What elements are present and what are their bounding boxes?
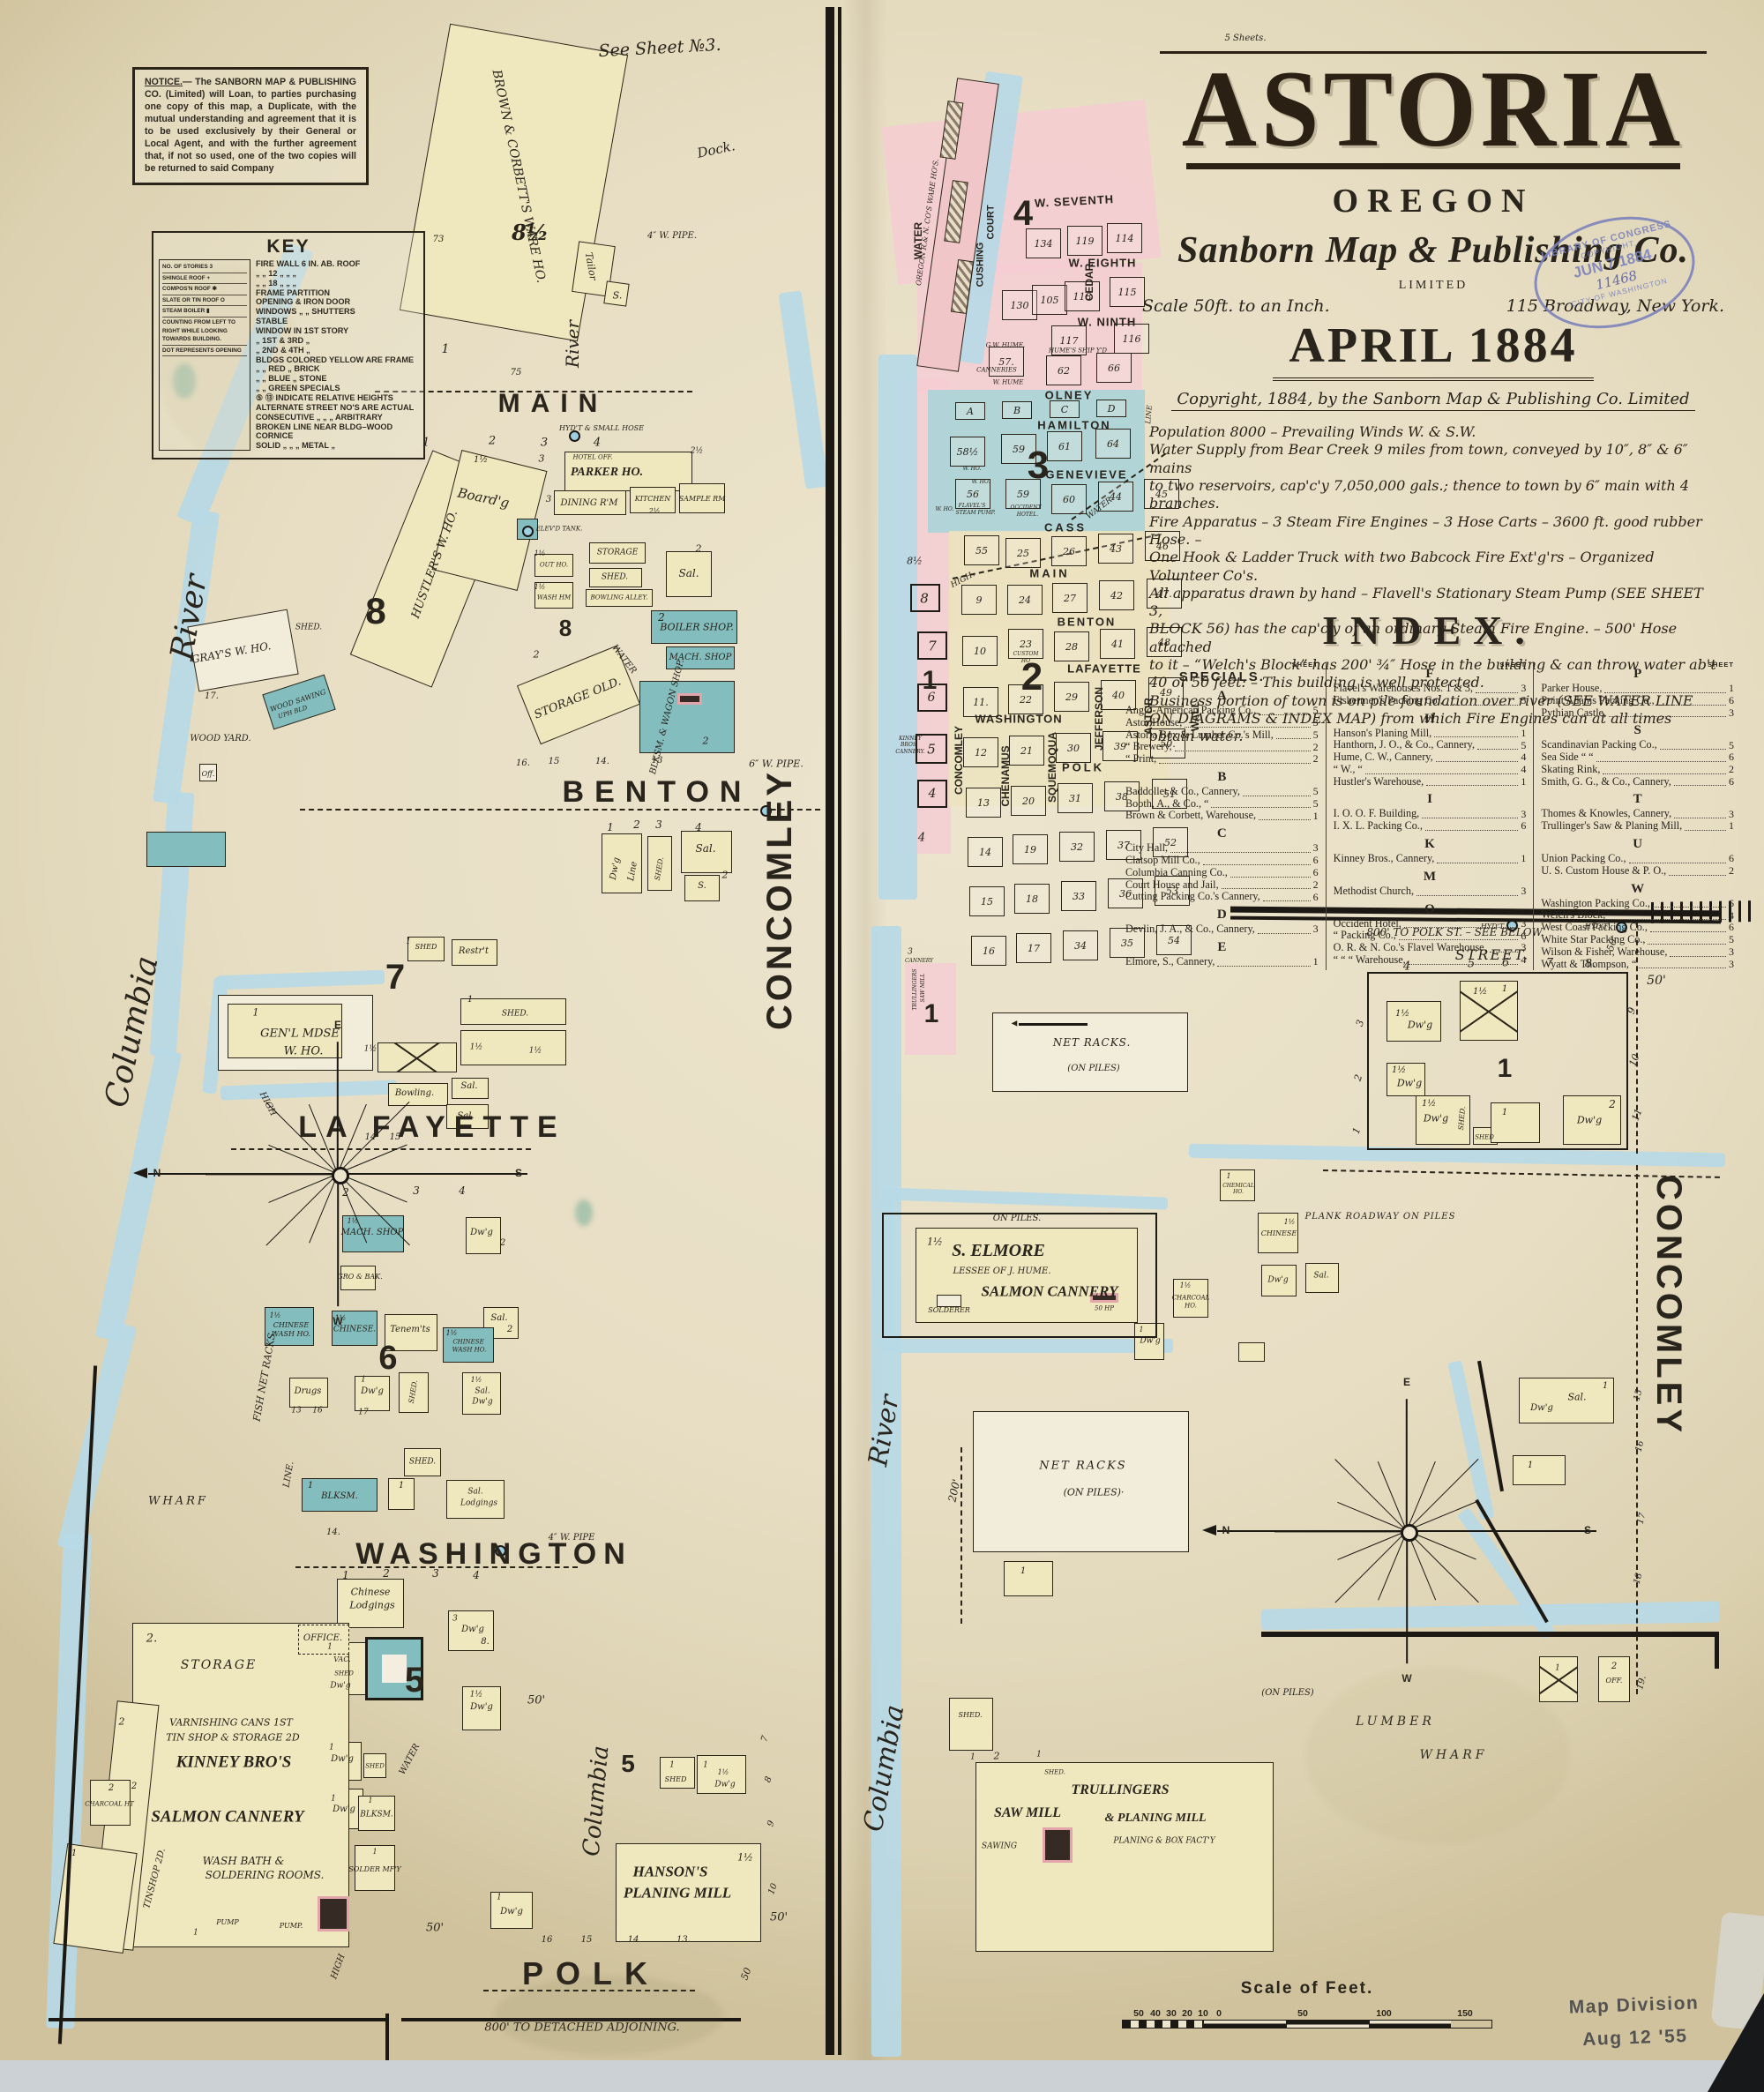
index-letter: E [1125,940,1319,955]
index-entry-sheet-number: 3 [1313,842,1319,855]
map-label: OFFICE. [303,1634,342,1643]
street-centerline [300,809,820,811]
map-label: 11 [1630,1108,1643,1123]
map-label: VAC. [333,1656,350,1663]
map-label: 1 [1603,1382,1608,1391]
map-label: 1½ [737,1853,753,1863]
map-label: (ON PILES) [1067,1065,1119,1073]
index-entry: Cutting Packing Co.'s Cannery,6 [1125,891,1319,903]
key-symbol-item: DOT REPRESENTS OPENING [162,346,247,357]
index-entry-name: Wyatt & Thompson, “ [1541,959,1636,971]
map-label: Dw'g [714,1782,735,1789]
index-map-block: 24 [1007,585,1043,615]
index-entry-sheet-number: 5 [1313,798,1319,811]
steam-boiler-icon [677,693,702,705]
map-label: W. HO. [972,480,990,485]
index-entry-name: Flavel's Warehouses Nos. 1 & 3, [1334,683,1473,695]
index-map-block: 30 [1056,733,1091,763]
key-title: KEY [159,236,418,258]
index-letter: C [1125,826,1319,841]
index-entry-name: Astor House, [1125,717,1182,729]
river-water [878,355,917,900]
map-label: 3 [452,1616,458,1624]
map-label: 8 [764,1775,774,1783]
map-label: & PLANING MILL [1104,1812,1206,1825]
map-label: 1 [331,1796,336,1804]
key-legend-column: FIRE WALL 6 IN. AB. ROOF „ „ 12 „ „ „ „ … [256,259,418,451]
map-label: HUME'S SHIP Y'D [1049,348,1107,355]
index-entry-sheet-number: 2 [1729,764,1734,776]
index-entry-sheet-number: 5 [1729,740,1734,752]
index-map-block: 43 [1098,534,1133,564]
key-legend-line: WINDOW IN 1ST STORY [256,326,418,336]
river-water [1447,1360,1494,1520]
index-header: SPECIALS. [1125,669,1319,684]
index-entry-leader [1217,966,1310,967]
river-water [46,1533,92,2029]
map-label: FLAVEL'S [959,504,986,509]
index-entry-name: “ W., “ [1334,764,1363,776]
map-label: 1 [193,1930,198,1938]
key-legend-line: „ 1ST & 3RD „ [256,336,418,346]
map-label: 19. [1636,1675,1648,1691]
map-label: Columbia [580,1745,613,1857]
map-label: 4 [594,437,601,449]
map-label: 8 [365,593,385,630]
map-label: 6 [378,1341,397,1375]
index-entry-leader [1276,738,1311,739]
index-entry-sheet-number: 5 [1313,786,1319,798]
index-entry-sheet-number: 2 [1729,865,1734,878]
map-label: SAMPLE RM [679,496,726,503]
key-box: KEY NO. OF STORIES 3SHINGLE ROOF +COMPOS… [152,231,425,459]
index-entry-name: Booth, A., & Co., “ [1125,798,1208,811]
map-label: 1 [669,1762,675,1770]
index-entry-name: Anglo-American Packing Co., [1125,705,1256,717]
map-label: 1 [467,996,473,1005]
index-entry-name: West Coast Packing Co., [1541,922,1648,934]
map-label: Drugs [295,1387,322,1396]
index-entry: I. X. L. Packing Co.,6 [1334,820,1527,833]
index-entry-name: Brown & Corbett, Warehouse, [1125,810,1256,822]
index-entry-sheet-number: 6 [1729,922,1734,934]
index-entry-leader [1660,749,1726,750]
index-entry-leader [1170,852,1311,853]
scale-tick-label: 100 [1376,2008,1392,2019]
map-label: 200' [946,1478,961,1503]
map-label: BLKSM. [360,1812,393,1819]
index-map-block: 29 [1054,682,1089,712]
map-label: SQUEMOQUA [1047,732,1058,803]
map-label: CHENAMUS [1000,745,1011,806]
index-entry-leader [1674,785,1726,786]
map-label: 1 [399,1482,404,1491]
map-label: 5 [927,743,936,757]
map-label: CHARCOAL HT [85,1802,134,1808]
map-label: CANNERIES [976,368,1017,374]
map-label: VARNISHING CANS 1ST [169,1718,293,1728]
scale-tick-label: 0 [1216,2008,1222,2019]
index-entry: Brown & Corbett, Warehouse,1 [1125,810,1319,822]
map-label: Sal. [678,568,699,579]
map-label: 2 [383,1568,390,1579]
notice-title: NOTICE. [145,77,183,87]
index-entry-leader [1436,761,1519,762]
map-label: 14. [595,758,609,766]
map-label: Dw'g [470,1229,493,1237]
map-label: 14 [628,1936,639,1945]
index-entry-sheet-number: 3 [1521,918,1526,930]
map-label: 1½ [470,1692,482,1700]
map-label: 9 [766,1819,777,1827]
index-entry-sheet-number: 2 [1313,742,1319,754]
map-label: 1 [372,1849,377,1856]
index-entry: “ “ “ Warehouse,4 [1334,954,1527,967]
index-entry-leader [1657,705,1726,706]
index-entry: Pythian Castle,3 [1541,707,1734,720]
river-water [779,290,829,489]
map-label: 4 [929,788,937,800]
index-entry-sheet-number: 5 [1313,729,1319,742]
map-label: Dw'g [461,1625,484,1634]
map-label: CEDAR [1084,264,1095,302]
index-entry-sheet-number: 6 [1729,776,1734,788]
map-label: SOLDERER [928,1307,970,1314]
index-map-block: 62 [1046,355,1081,385]
compass-spoke [337,1174,339,1306]
index-entry-leader [1259,714,1310,715]
key-legend-line: „ „ RED „ BRICK [256,364,418,374]
key-legend-line: „ 2ND & 4TH „ [256,346,418,355]
index-entry: Trullinger's Saw & Planing Mill,1 [1541,820,1734,833]
index-entry: City Hall,3 [1125,842,1319,855]
map-label: 50' [527,1695,545,1707]
map-label: NET RACKS [1039,1461,1126,1472]
map-label: KINNEY BRO'S [176,1754,292,1771]
map-label: ELEV'D TANK. [536,527,583,533]
steam-boiler-icon [318,1896,349,1931]
map-label: PLANING & BOX FACT'Y [1113,1838,1215,1846]
map-label: 1 [1139,1326,1143,1334]
map-label: 1 [342,1570,349,1580]
index-map-block: 25 [1005,538,1041,568]
map-label: 4″ W. PIPE. [647,232,697,241]
map-label: SALMON CANNERY [151,1809,303,1826]
index-entry-sheet-number: 3 [1313,923,1319,936]
map-label: OFF. [1606,1677,1623,1685]
map-label: 5 Sheets. [1225,34,1267,43]
map-label: 16 [312,1408,322,1416]
map-label: 1½ [364,1046,377,1054]
index-entry-sheet-number: 3 [1313,717,1319,729]
index-entry-leader [1203,864,1311,865]
map-label: 3 [432,1568,439,1579]
map-label: Sal. [475,1388,490,1396]
index-entry-sheet-number: 6 [1521,820,1526,833]
index-entry-sheet-number: 3 [1729,946,1734,959]
index-entry-sheet-number: 6 [1313,892,1319,904]
map-label: 8 [559,616,572,639]
index-letter: M [1334,870,1527,885]
map-label: 1½ [1392,1066,1406,1075]
index-entry-sheet-number: 5 [1521,740,1526,752]
compass-spoke [1406,1531,1408,1663]
index-map-block: B [1002,401,1032,419]
map-label: 7 [385,960,405,995]
copyright-line: Copyright, 1884, by the Sanborn Map & Pu… [1171,390,1694,411]
scale-bar-title: Scale of Feet. [1122,1979,1492,1999]
index-entry-name: Point Adams Packing Co., [1541,695,1654,707]
map-label: CONCOMLEY [762,769,797,1030]
map-label: 1½ [474,456,488,465]
index-entry-leader [1425,830,1518,831]
map-label: JEFFERSON [1094,687,1104,751]
map-label: 1 [253,1008,259,1018]
index-entry-leader [1426,785,1518,786]
index-entry-sheet-number: 6 [1521,930,1526,943]
map-label: CHINESE [452,1340,483,1346]
index-entry-leader [1608,919,1726,920]
index-entry-leader [1399,939,1519,940]
index-entry: Scandinavian Packing Co.,5 [1541,739,1734,751]
index-letter: B [1125,770,1319,785]
map-label: 7 [928,640,937,654]
index-entry: Astoria Box & Lumber Co.'s Mill,5 [1125,729,1319,742]
index-map-block: 14 [968,837,1003,867]
index-entry: White Star Packing Co.,5 [1541,934,1734,946]
map-label: (ON PILES)· [1064,1488,1125,1498]
compass-letter: W [333,1316,342,1326]
index-entry-name: I. X. L. Packing Co., [1334,820,1423,833]
river-water [871,926,901,2057]
index-map-block: C [1050,400,1080,418]
map-label: W. EIGHTH [1069,258,1137,269]
key-legend-line: „ „ BLUE „ STONE [256,374,418,384]
map-label: 2 [500,1239,505,1248]
building [377,1042,457,1072]
index-map-block: 21 [1009,736,1044,766]
map-label: BENTON [563,777,752,807]
scale-note: Scale 50ft. to an Inch. [1142,296,1330,316]
map-label: 1 [607,822,614,833]
building [1004,1561,1053,1596]
map-label: 2 [1611,1662,1617,1671]
map-label: Lodgings [460,1500,497,1508]
map-label: 2 [507,1326,512,1334]
index-entry-sheet-number: 5 [1521,695,1526,707]
map-label: 8½ [907,557,923,566]
map-label: 75 [511,369,522,377]
map-label: Sal. [1567,1393,1586,1402]
map-label: SHED. [959,1712,983,1719]
index-entry-name: Devlin, J. A., & Co., Cannery, [1125,923,1255,936]
map-label: 4 [918,833,925,844]
map-label: S. ELMORE [952,1242,1045,1259]
map-label: 1½ [270,1312,281,1319]
steam-boiler-icon [1043,1827,1073,1863]
map-title: ASTORIA [1133,55,1733,164]
index-entry-leader [1477,749,1518,750]
compass-letter: S [1584,1525,1591,1535]
index-entry-leader [1258,933,1311,934]
map-label: SAWING [982,1843,1017,1851]
map-label: 1½ [534,584,546,591]
map-label: 6 [928,691,936,704]
compass-arrowhead [1202,1525,1216,1535]
map-label: Sal. [467,1489,482,1497]
map-label: TRULLINGERS [1071,1783,1169,1797]
index-entry-name: Skating Rink, [1541,764,1600,776]
index-entry-name: Welch's Block, [1541,909,1605,922]
index-entry-name: Sea Side “ “ [1541,751,1593,764]
index-entry-name: Hanson's Planing Mill, [1334,728,1432,740]
index-map-block: 64 [1095,429,1131,459]
key-legend-line: ALTERNATE STREET NO'S ARE ACTUAL [256,403,418,413]
index-map-block: 12 [963,737,998,767]
map-label: 3 [908,949,913,957]
map-label: HAMILTON [1037,420,1110,431]
index-entry: Washington Packing Co.,6 [1541,898,1734,910]
map-label: See Sheet №3. [598,37,721,60]
index-entry-name: “ Print, [1125,753,1156,766]
map-label: WASH HO. [452,1348,487,1354]
index-entry-name: Hustler's Warehouse, [1334,776,1424,788]
index-entry-leader [1490,952,1519,953]
index-entry: Wilson & Fisher, Warehouse,3 [1541,946,1734,959]
map-label: 2½ [691,448,703,456]
map-label: 8 [920,593,929,606]
map-label: SOLDER MF'Y [348,1866,400,1873]
map-label: 1 [970,1754,975,1762]
index-entry-leader [1648,944,1726,945]
notice-box: NOTICE.— The SANBORN MAP & PUBLISHING CO… [132,67,369,185]
map-label: WATER [399,1743,422,1776]
building [660,1757,695,1789]
index-entry-leader [1243,796,1311,796]
scale-bar: Scale of Feet. 5040302010050100150 [1122,1979,1492,2028]
map-label: 1½ [529,1048,542,1056]
map-label: WASH HM [537,595,571,601]
index-entry-name: Court House and Jail, [1125,879,1219,892]
paper-stain [575,1199,593,1226]
map-label: HO. [1233,1190,1244,1195]
index-map-block: 16 [971,936,1006,966]
map-label: WASH BATH & [203,1856,285,1866]
index-entry: U. S. Custom House & P. O.,2 [1541,865,1734,878]
paper-stain [494,1976,723,2055]
map-label: 1 [329,1745,334,1752]
map-label: SALMON CANNERY [981,1284,1117,1299]
map-label: FISH NET RACKS. [252,1330,278,1423]
map-label: 1 [1226,1173,1230,1180]
index-column: SHEETPParker House,1Point Adams Packing … [1533,662,1741,970]
street-centerline [960,1447,962,1624]
map-label: 1 [1555,1665,1560,1673]
map-label: MAIN [498,391,609,417]
index-entry-leader [1629,863,1727,863]
map-label: 1 [924,1001,939,1027]
map-label: 13 [291,1408,301,1416]
map-label: PARKER HO. [571,467,643,479]
index-letter: P [1541,667,1734,682]
map-label: Dw'g [500,1908,523,1916]
map-label: HOTEL. [1017,512,1038,518]
map-label: HOTEL OFF. [572,455,612,461]
key-legend-line: FRAME PARTITION [256,288,418,298]
index-block: INDEX. SHEETSPECIALS.AAnglo-American Pac… [1118,607,1741,970]
index-entry-leader [1434,736,1518,737]
index-entry-leader [1230,877,1311,878]
map-label: Dw'g [1140,1338,1160,1346]
index-entry-sheet-number: 1 [1313,956,1319,968]
index-map-block: 26 [1051,536,1087,566]
map-label: 2 [994,1752,1000,1761]
map-label: 1 [1020,1567,1026,1576]
map-label: Lodgings [349,1601,394,1610]
map-label: TIN SHOP & STORAGE 2D [166,1733,299,1743]
map-border-line [826,7,834,2055]
map-label: 16 [1635,1440,1647,1453]
index-entry: Wyatt & Thompson, “3 [1541,959,1734,971]
index-entry-sheet-number: 4 [1521,764,1526,776]
index-sheet-label: SHEET [1292,661,1319,669]
index-entry-leader [1669,875,1726,876]
street-centerline [1636,1165,1638,1694]
map-label: (ON PILES) [1261,1689,1313,1698]
map-label: CUSHING [976,243,986,288]
index-map-block: 18 [1014,884,1050,914]
compass-arrowhead [133,1168,147,1178]
map-label: 1 [1036,1752,1042,1760]
index-entry-leader [1365,773,1519,774]
map-label: 4 [1013,196,1033,231]
index-map-block: 61 [1047,431,1082,461]
index-entry-leader [1685,830,1726,831]
compass-hub [332,1167,349,1184]
index-entry-sheet-number: 6 [1729,898,1734,910]
map-label: 2 [703,736,709,746]
map-label: SHED. [409,1459,436,1467]
map-label: HIGH [330,1953,347,1980]
index-entry-sheet-number: 2 [1313,753,1319,766]
map-label: Dw'g [472,1399,492,1407]
map-label: Dw'g [330,1683,350,1691]
map-label: 1½ [446,1330,458,1337]
index-entry: Astor House,3 [1125,717,1319,729]
index-entry-sheet-number: 2 [1313,879,1319,892]
index-map-block: D [1096,400,1126,417]
building [1513,1455,1566,1485]
index-columns: SHEETSPECIALS.AAnglo-American Packing Co… [1118,662,1741,970]
index-entry-sheet-number: 6 [1313,855,1319,867]
scale-bar-segment [1369,2021,1451,2028]
map-label: BENTON [1058,616,1117,628]
map-label: 2 [131,1782,137,1791]
index-entry: Union Packing Co.,6 [1541,853,1734,865]
map-label: CASS [1044,522,1087,534]
map-label: 16 [542,1936,553,1945]
map-label: WATER [913,222,923,259]
map-label: SHED. [1044,1770,1065,1776]
map-label: W. HUME [993,380,1024,386]
map-label: 74 [527,234,539,243]
map-label: 2 [119,1717,125,1727]
map-label: BOILER SHOP. [660,623,734,632]
map-label: River [564,320,581,368]
index-entry: Thomes & Knowles, Cannery,3 [1541,808,1734,820]
index-map-block: 119 [1067,226,1102,256]
index-entry: Point Adams Packing Co.,6 [1541,695,1734,707]
